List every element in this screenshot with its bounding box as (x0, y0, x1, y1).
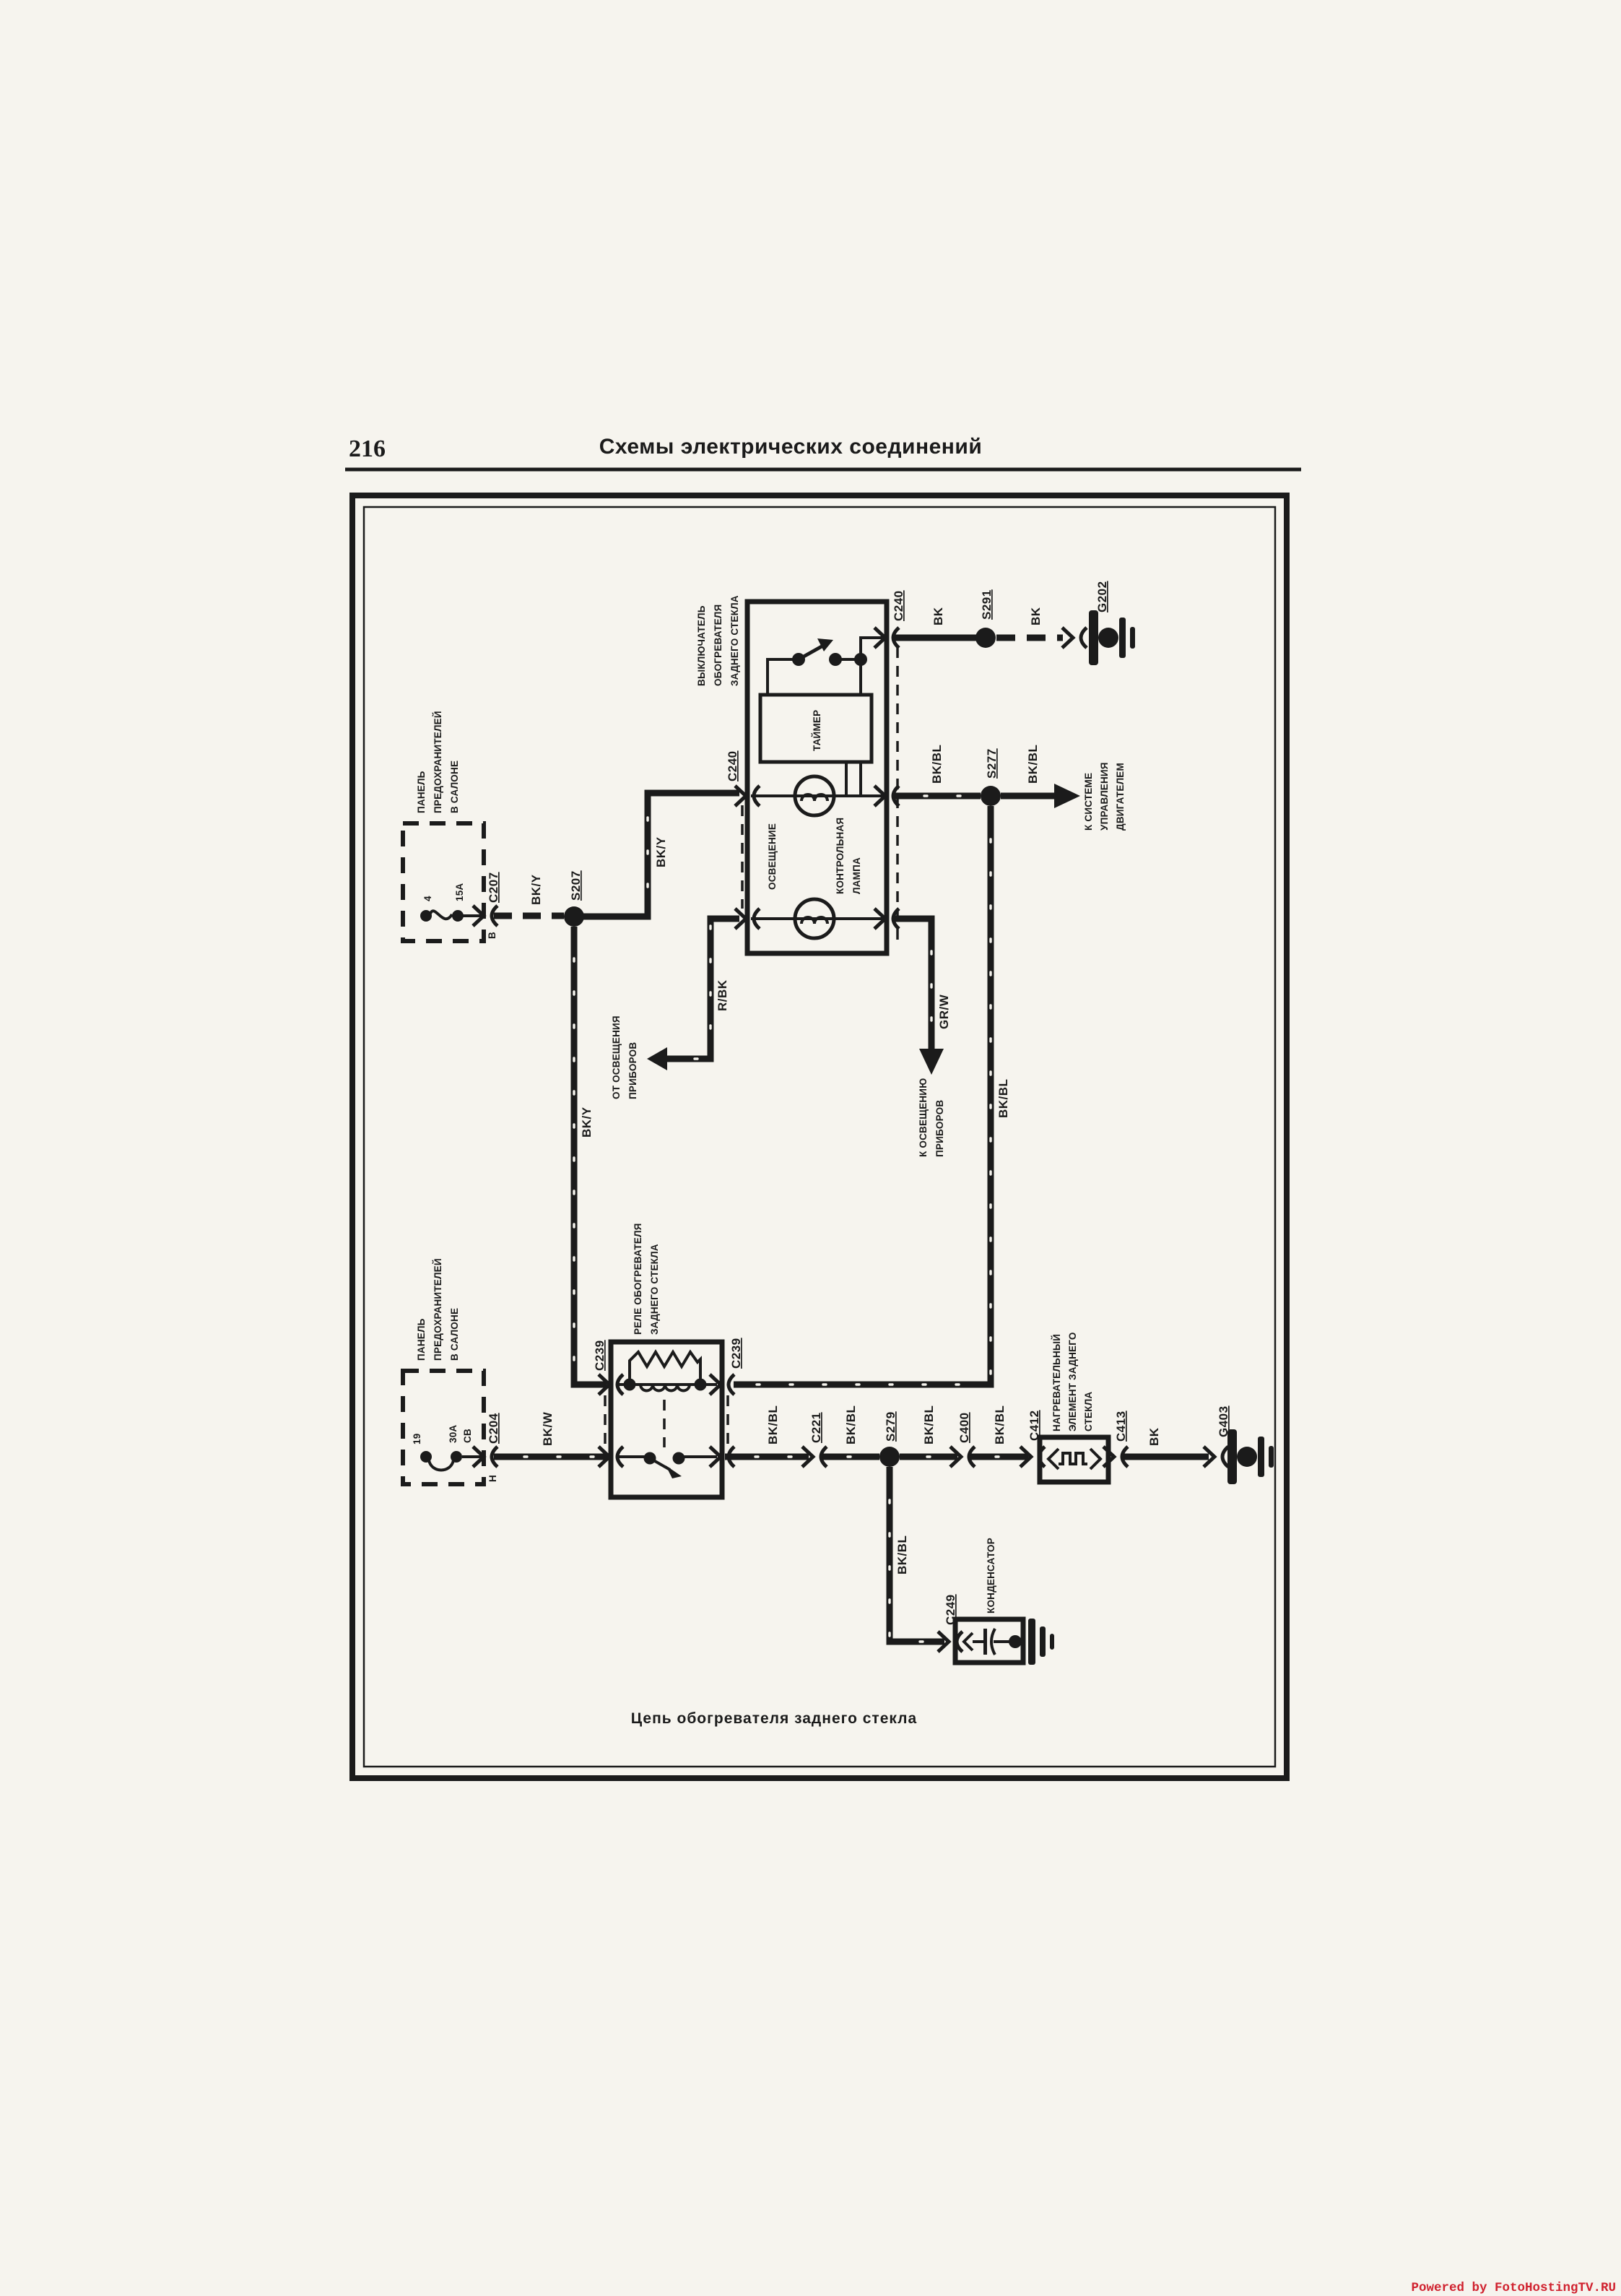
relay-name-label-2: ЗАДНЕГО СТЕКЛА (649, 1244, 660, 1335)
fuse-panel-bottom-label-1: ПАНЕЛЬ (416, 1318, 427, 1361)
breaker-rating-type-label: CB (462, 1429, 473, 1443)
run-grw-instruments: GR/W К ОСВЕЩЕНИЮ ПРИБОРОВ (892, 919, 951, 1157)
connector-c239-right-label: C239 (729, 1338, 743, 1369)
splice-s291 (975, 628, 996, 648)
defogger-switch-assembly: ВЫКЛЮЧАТЕЛЬ ОБОГРЕВАТЕЛЯ ЗАДНЕГО СТЕКЛА … (696, 590, 905, 953)
connector-c239-left-label: C239 (593, 1340, 607, 1371)
relay-coil (616, 1352, 717, 1447)
wire-bkbl-label-6: BK/BL (922, 1405, 936, 1444)
switch-name-label-3: ЗАДНЕГО СТЕКЛА (729, 595, 740, 686)
heater-name-label-3: СТЕКЛА (1083, 1392, 1094, 1431)
splice-s207-label: S207 (569, 870, 583, 901)
pin-h-label: H (487, 1475, 498, 1482)
scanned-manual-page: 216 Схемы электрических соединений ПАНЕЛ… (0, 0, 1621, 2296)
fuse-panel-top-label-1: ПАНЕЛЬ (416, 771, 427, 813)
wire-bky-label-1: BK/Y (529, 874, 543, 905)
watermark: Powered by FotoHostingTV.RU (1411, 2281, 1616, 2295)
wire-bkw-label: BK/W (541, 1411, 555, 1446)
wire-bkbl-label-8: BK/BL (895, 1535, 909, 1574)
ground-g202-icon (1089, 610, 1135, 665)
wire-bkbl-label-4: BK/BL (766, 1405, 780, 1444)
capacitor-branch: BK/BL C249 КОНДЕНСАТОР (890, 1467, 1054, 1665)
ground-g403-icon (1227, 1429, 1274, 1484)
timer-box: ТАЙМЕР (760, 695, 872, 796)
heater-name-label-2: ЭЛЕМЕНТ ЗАДНЕГО (1067, 1332, 1078, 1431)
wire-grw-label: GR/W (937, 994, 951, 1029)
offpage-ecm-label-1: К СИСТЕМЕ (1083, 773, 1094, 831)
timer-label: ТАЙМЕР (812, 710, 822, 751)
splice-s279-label: S279 (884, 1411, 898, 1442)
splice-s277 (981, 786, 1001, 806)
run-rbk-instruments: R/BK ОТ ОСВЕЩЕНИЯ ПРИБОРОВ (611, 919, 739, 1099)
fuse-15a (420, 910, 464, 922)
wire-bkbl-label-3: BK/BL (996, 1079, 1010, 1118)
wire-bk-label-2: BK (1029, 607, 1043, 625)
wire-bky-label-3: BK/Y (580, 1106, 594, 1138)
wire-bkbl-label-5: BK/BL (844, 1405, 858, 1444)
switch-contacts (768, 638, 887, 695)
wire-bkbl-label-1: BK/BL (930, 745, 944, 784)
breaker-position-label: 19 (412, 1434, 422, 1444)
wire-bkbl-label-2: BK/BL (1026, 745, 1040, 784)
connector-c400-label: C400 (957, 1412, 971, 1443)
splice-s279 (879, 1447, 900, 1467)
fuse-panel-top-label-2: ПРЕДОХРАНИТЕЛЕЙ (433, 711, 443, 813)
wire-bk-label-3: BK (1147, 1427, 1161, 1446)
connector-c207-label: C207 (487, 872, 500, 903)
circuit-breaker-30a (420, 1451, 462, 1470)
wire-bky-label-2: BK/Y (654, 836, 668, 867)
arrow-to-ecm (1054, 784, 1080, 808)
fuse-panel-bottom: ПАНЕЛЬ ПРЕДОХРАНИТЕЛЕЙ В САЛОНЕ 19 30A C… (403, 1258, 500, 1484)
lamp-indicator-label-2: ЛАМПА (851, 857, 862, 894)
offpage-to-instruments-label-1: К ОСВЕЩЕНИЮ (918, 1078, 929, 1157)
ground-g202-connector (1062, 628, 1087, 648)
connector-c204-label: C204 (487, 1413, 500, 1444)
fuse-rating-label: 15A (454, 883, 465, 901)
splice-s277-label: S277 (985, 748, 999, 779)
capacitor-label: КОНДЕНСАТОР (986, 1538, 996, 1613)
lamp-illumination-label: ОСВЕЩЕНИЕ (767, 823, 778, 890)
fuse-panel-bottom-label-3: В САЛОНЕ (449, 1308, 460, 1361)
wire-bkw-feed: BK/W (494, 1411, 608, 1457)
switch-name-label-2: ОБОГРЕВАТЕЛЯ (713, 605, 723, 686)
connector-c240-left-label: C240 (726, 750, 739, 781)
arrow-from-instrument-lighting (647, 1047, 667, 1070)
defogger-relay: РЕЛЕ ОБОГРЕВАТЕЛЯ ЗАДНЕГО СТЕКЛА C239 C2… (593, 1223, 743, 1497)
diagram-frame (352, 495, 1287, 1778)
breaker-rating-amps-label: 30A (448, 1425, 459, 1443)
offpage-to-instruments-label-2: ПРИБОРОВ (934, 1100, 945, 1157)
connector-c240-top-label: C240 (892, 590, 905, 621)
relay-name-label-1: РЕЛЕ ОБОГРЕВАТЕЛЯ (633, 1223, 643, 1335)
offpage-ecm-label-2: УПРАВЛЕНИЯ (1099, 762, 1110, 831)
fuse-panel-bottom-label-2: ПРЕДОХРАНИТЕЛЕЙ (433, 1258, 443, 1361)
heater-output-chain: BK/BL C221 BK/BL S279 BK/BL C400 BK/BL C… (725, 1405, 1045, 1467)
wire-bkbl-label-7: BK/BL (993, 1405, 1007, 1444)
ground-g403-label: G403 (1217, 1405, 1230, 1437)
diagram-caption: Цепь обогревателя заднего стекла (631, 1710, 917, 1727)
fuse-panel-top-label-3: В САЛОНЕ (449, 761, 460, 813)
fuse-position-label: 4 (422, 896, 433, 901)
wire-rbk-label: R/BK (716, 979, 729, 1011)
heater-element: НАГРЕВАТЕЛЬНЫЙ ЭЛЕМЕНТ ЗАДНЕГО СТЕКЛА C4… (1040, 1332, 1274, 1484)
connector-c221-label: C221 (809, 1412, 823, 1443)
lamp-illumination: ОСВЕЩЕНИЕ (751, 776, 884, 890)
splice-s291-label: S291 (980, 589, 994, 620)
page-number: 216 (349, 436, 386, 462)
offpage-from-instruments-label-1: ОТ ОСВЕЩЕНИЯ (611, 1015, 622, 1099)
page-title: Схемы электрических соединений (599, 435, 983, 459)
switch-name-label-1: ВЫКЛЮЧАТЕЛЬ (696, 605, 707, 686)
arrow-to-instrument-lighting (919, 1049, 944, 1075)
lamp-indicator-label-1: КОНТРОЛЬНАЯ (835, 818, 846, 894)
wiring-diagram: 216 Схемы электрических соединений ПАНЕЛ… (0, 0, 1621, 2296)
capacitor-ground-icon (1028, 1619, 1054, 1665)
connector-c413-label: C413 (1114, 1411, 1128, 1442)
relay-switch (616, 1452, 717, 1479)
pin-b-label: B (487, 932, 497, 939)
ground-run-g202: BK S291 BK G202 (892, 581, 1135, 665)
heater-name-label-1: НАГРЕВАТЕЛЬНЫЙ (1051, 1334, 1062, 1431)
ground-g202-label: G202 (1095, 581, 1109, 612)
offpage-ecm-label-3: ДВИГАТЕЛЕМ (1115, 763, 1126, 831)
capacitor-icon (964, 1629, 1022, 1655)
fuse-panel-top: ПАНЕЛЬ ПРЕДОХРАНИТЕЛЕЙ В САЛОНЕ 4 15A C2… (403, 711, 500, 941)
offpage-from-instruments-label-2: ПРИБОРОВ (627, 1042, 638, 1099)
wire-bk-label-1: BK (931, 607, 945, 625)
